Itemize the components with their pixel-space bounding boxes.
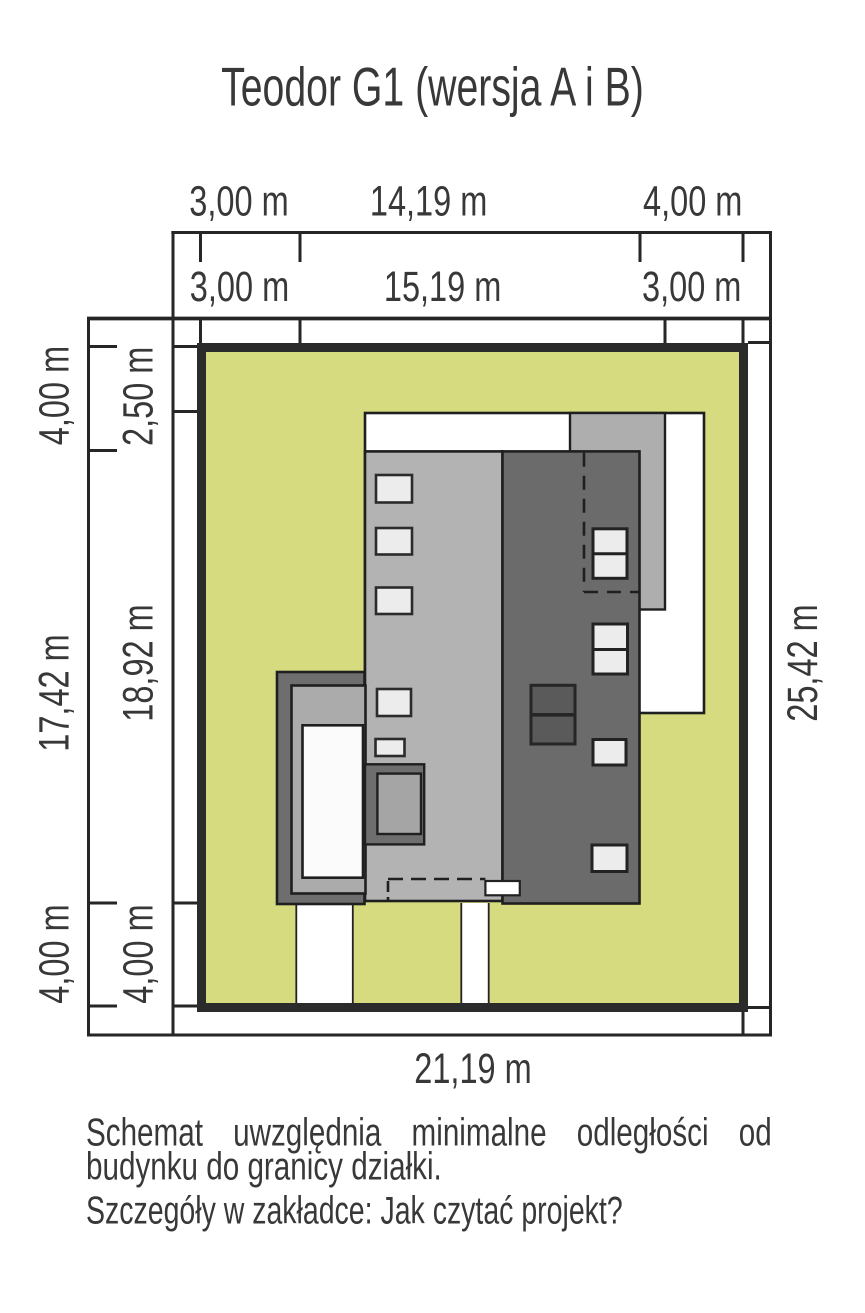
- svg-text:15,19 m: 15,19 m: [384, 264, 501, 311]
- svg-text:21,19 m: 21,19 m: [414, 1046, 531, 1093]
- svg-text:3,00 m: 3,00 m: [642, 264, 741, 311]
- svg-text:18,92 m: 18,92 m: [115, 604, 162, 721]
- svg-text:17,42 m: 17,42 m: [31, 634, 78, 751]
- svg-text:3,00 m: 3,00 m: [190, 264, 289, 311]
- svg-text:14,19 m: 14,19 m: [370, 178, 487, 225]
- svg-text:budynku do granicy działki.: budynku do granicy działki.: [86, 1146, 442, 1189]
- svg-text:4,00 m: 4,00 m: [31, 904, 78, 1003]
- svg-text:25,42 m: 25,42 m: [780, 604, 827, 721]
- svg-text:2,50 m: 2,50 m: [115, 347, 162, 446]
- svg-text:Szczegóły w zakładce: Jak czyt: Szczegóły w zakładce: Jak czytać projekt…: [86, 1189, 623, 1232]
- svg-text:3,00 m: 3,00 m: [189, 178, 288, 225]
- svg-text:4,00 m: 4,00 m: [31, 346, 78, 445]
- svg-text:4,00 m: 4,00 m: [643, 178, 742, 225]
- svg-text:4,00 m: 4,00 m: [115, 904, 162, 1003]
- svg-text:Teodor G1 (wersja A i B): Teodor G1 (wersja A i B): [221, 57, 644, 118]
